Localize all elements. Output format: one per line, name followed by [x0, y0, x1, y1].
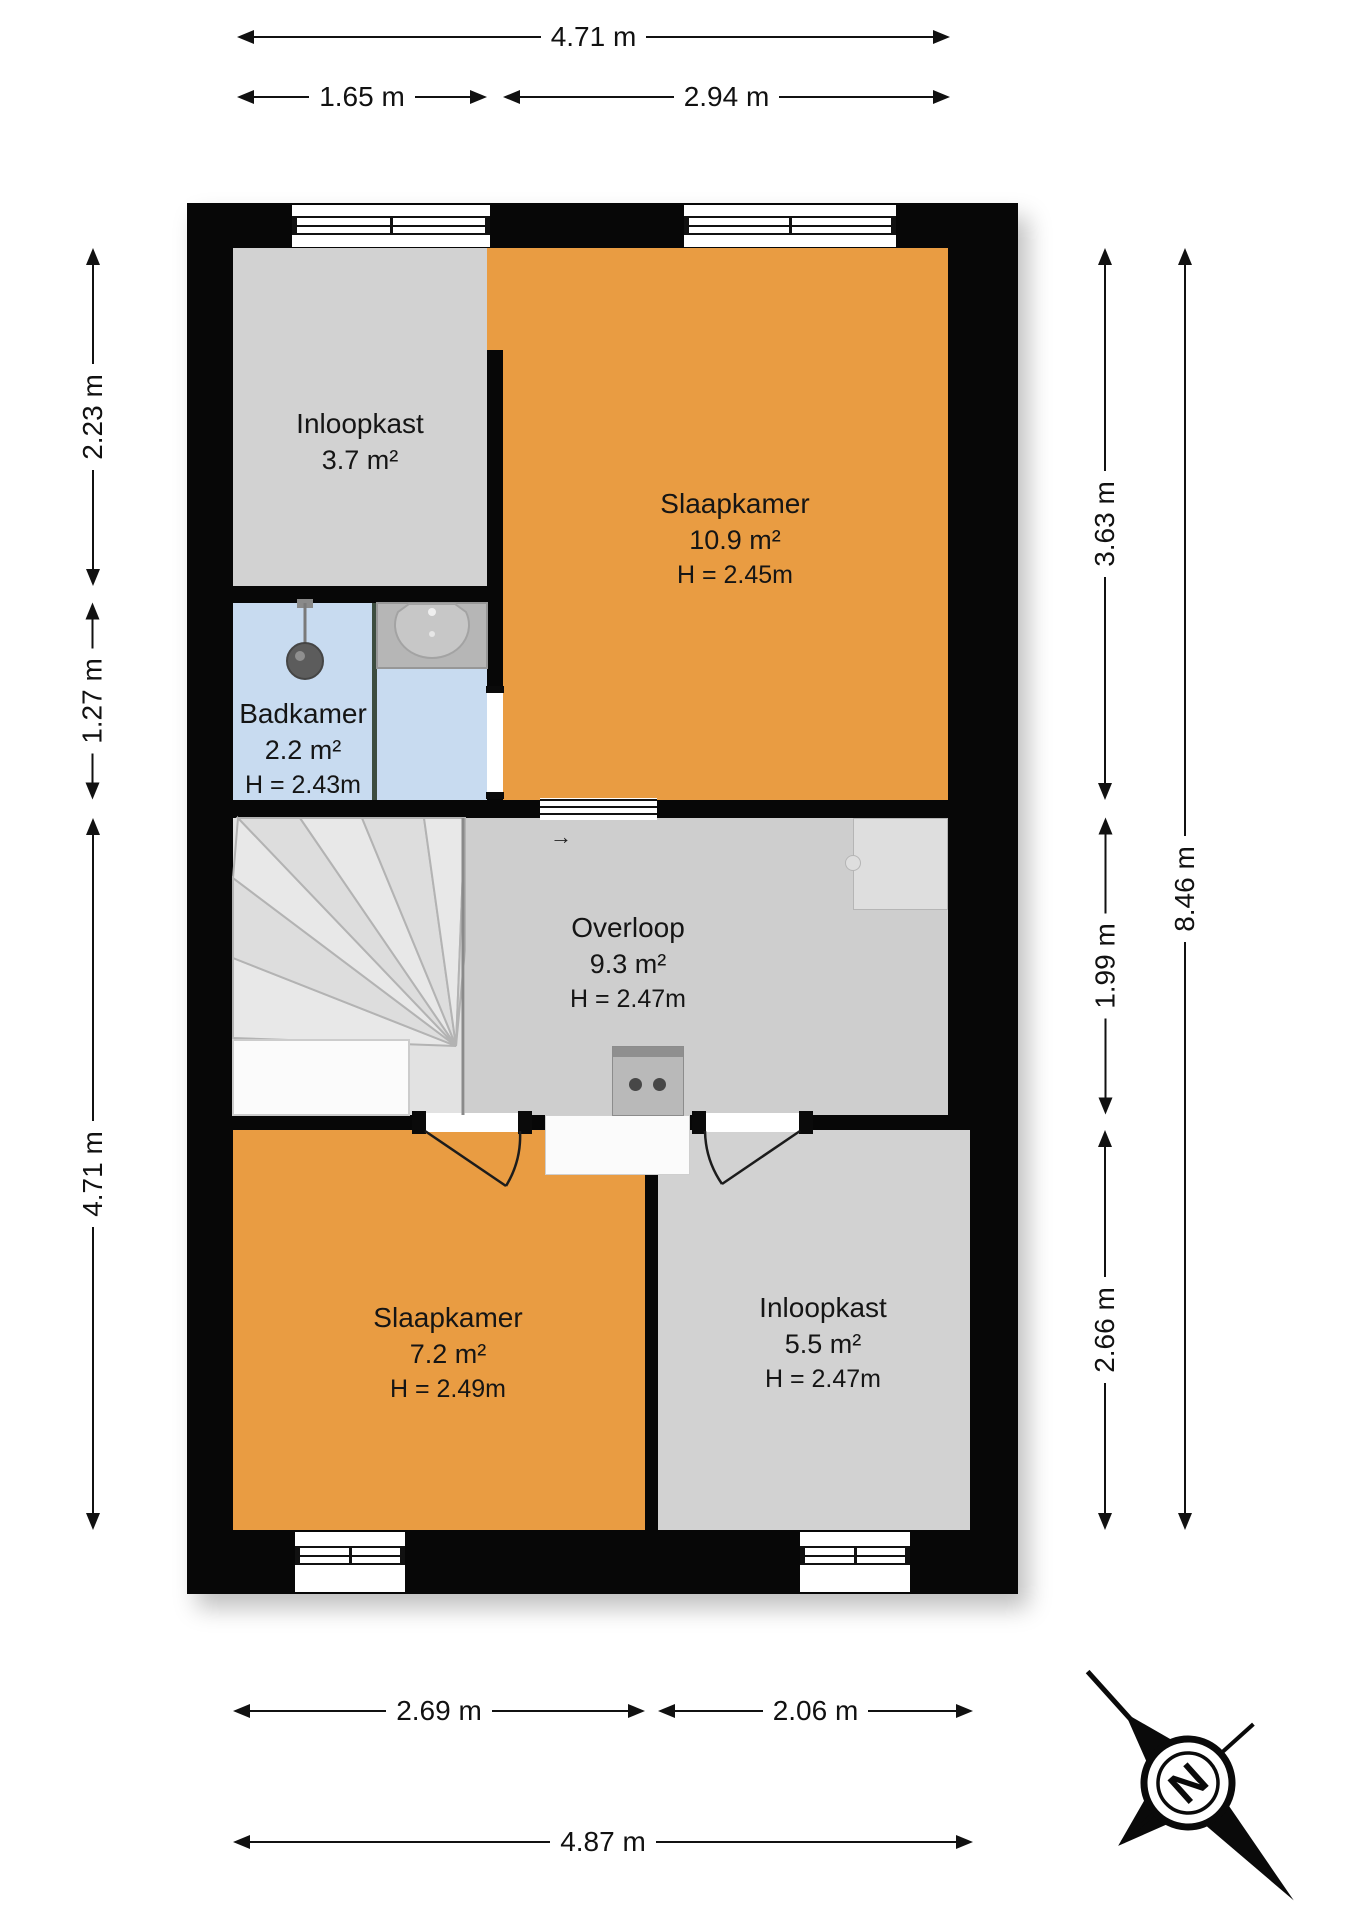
room-area: 5.5 m² [673, 1327, 973, 1363]
dimension-left-lower: 4.71 m [78, 818, 108, 1530]
room-label-slaapkamer-top: Slaapkamer 10.9 m² H = 2.45m [585, 486, 885, 591]
room-name: Slaapkamer [298, 1300, 598, 1337]
room-height: H = 2.47m [478, 983, 778, 1016]
door-leaf-handle [845, 855, 861, 871]
door-badkamer-cap-bottom [486, 792, 504, 799]
dimension-bottom-left: 2.69 m [233, 1696, 645, 1726]
room-label-inloopkast-bottom: Inloopkast 5.5 m² H = 2.47m [673, 1290, 973, 1395]
dimension-top-overall: 4.71 m [237, 22, 950, 52]
floor-plan: → [0, 0, 1358, 1920]
room-height: H = 2.43m [153, 769, 453, 802]
room-name: Overloop [478, 910, 778, 947]
window-icon [684, 216, 896, 235]
dimension-bottom-right: 2.06 m [658, 1696, 973, 1726]
dimension-bottom-overall: 4.87 m [233, 1827, 973, 1857]
room-area: 10.9 m² [585, 523, 885, 559]
door-frame-cap [412, 1111, 426, 1134]
stairs-area [233, 818, 465, 1115]
wall-right-lower [970, 1122, 1018, 1594]
door-frame-cap [692, 1111, 706, 1134]
room-name: Badkamer [153, 696, 453, 733]
wall-between-bottom-rooms [645, 1130, 658, 1530]
dimension-right-upper: 3.63 m [1090, 248, 1120, 800]
door-gap-slaapkamer-bottom [412, 1113, 532, 1132]
dimension-right-mid: 1.99 m [1091, 818, 1121, 1115]
room-name: Inloopkast [210, 406, 510, 443]
dimension-left-mid: 1.27 m [78, 603, 108, 800]
room-area: 2.2 m² [153, 733, 453, 769]
counter-box [545, 1115, 690, 1175]
room-label-slaapkamer-bottom: Slaapkamer 7.2 m² H = 2.49m [298, 1300, 598, 1405]
window-icon [292, 216, 490, 235]
compass-north-icon: N [1018, 1613, 1358, 1920]
window-icon [800, 1546, 910, 1565]
dimension-right-overall: 8.46 m [1170, 248, 1200, 1530]
dimension-top-right: 2.94 m [503, 82, 950, 112]
window-icon [295, 1546, 405, 1565]
room-name: Inloopkast [673, 1290, 973, 1327]
passage-direction-arrow: → [550, 824, 572, 850]
door-badkamer [487, 692, 503, 792]
room-area: 3.7 m² [210, 443, 510, 479]
door-frame-cap [799, 1111, 813, 1134]
room-height: H = 2.49m [298, 1373, 598, 1406]
washing-machine-icon [612, 1046, 684, 1116]
compass-north-label: N [1158, 1753, 1217, 1814]
room-area: 7.2 m² [298, 1337, 598, 1373]
dimension-right-lower: 2.66 m [1090, 1130, 1120, 1530]
wall-inloopkast-badkamer [233, 586, 503, 603]
room-area: 9.3 m² [478, 947, 778, 983]
open-door-leaf [853, 818, 948, 910]
room-label-overloop: Overloop 9.3 m² H = 2.47m [478, 910, 778, 1015]
door-gap-inloopkast-bottom [692, 1113, 813, 1132]
wall-right-upper [948, 203, 1018, 1122]
dimension-top-left: 1.65 m [237, 82, 487, 112]
room-height: H = 2.47m [673, 1363, 973, 1396]
room-label-inloopkast-top: Inloopkast 3.7 m² [210, 406, 510, 479]
room-label-badkamer: Badkamer 2.2 m² H = 2.43m [153, 696, 453, 801]
door-badkamer-cap-top [486, 686, 504, 693]
room-name: Slaapkamer [585, 486, 885, 523]
dimension-left-upper: 2.23 m [78, 248, 108, 586]
room-height: H = 2.45m [585, 559, 885, 592]
passage-threshold-stripes [540, 799, 657, 819]
door-frame-cap [518, 1111, 532, 1134]
